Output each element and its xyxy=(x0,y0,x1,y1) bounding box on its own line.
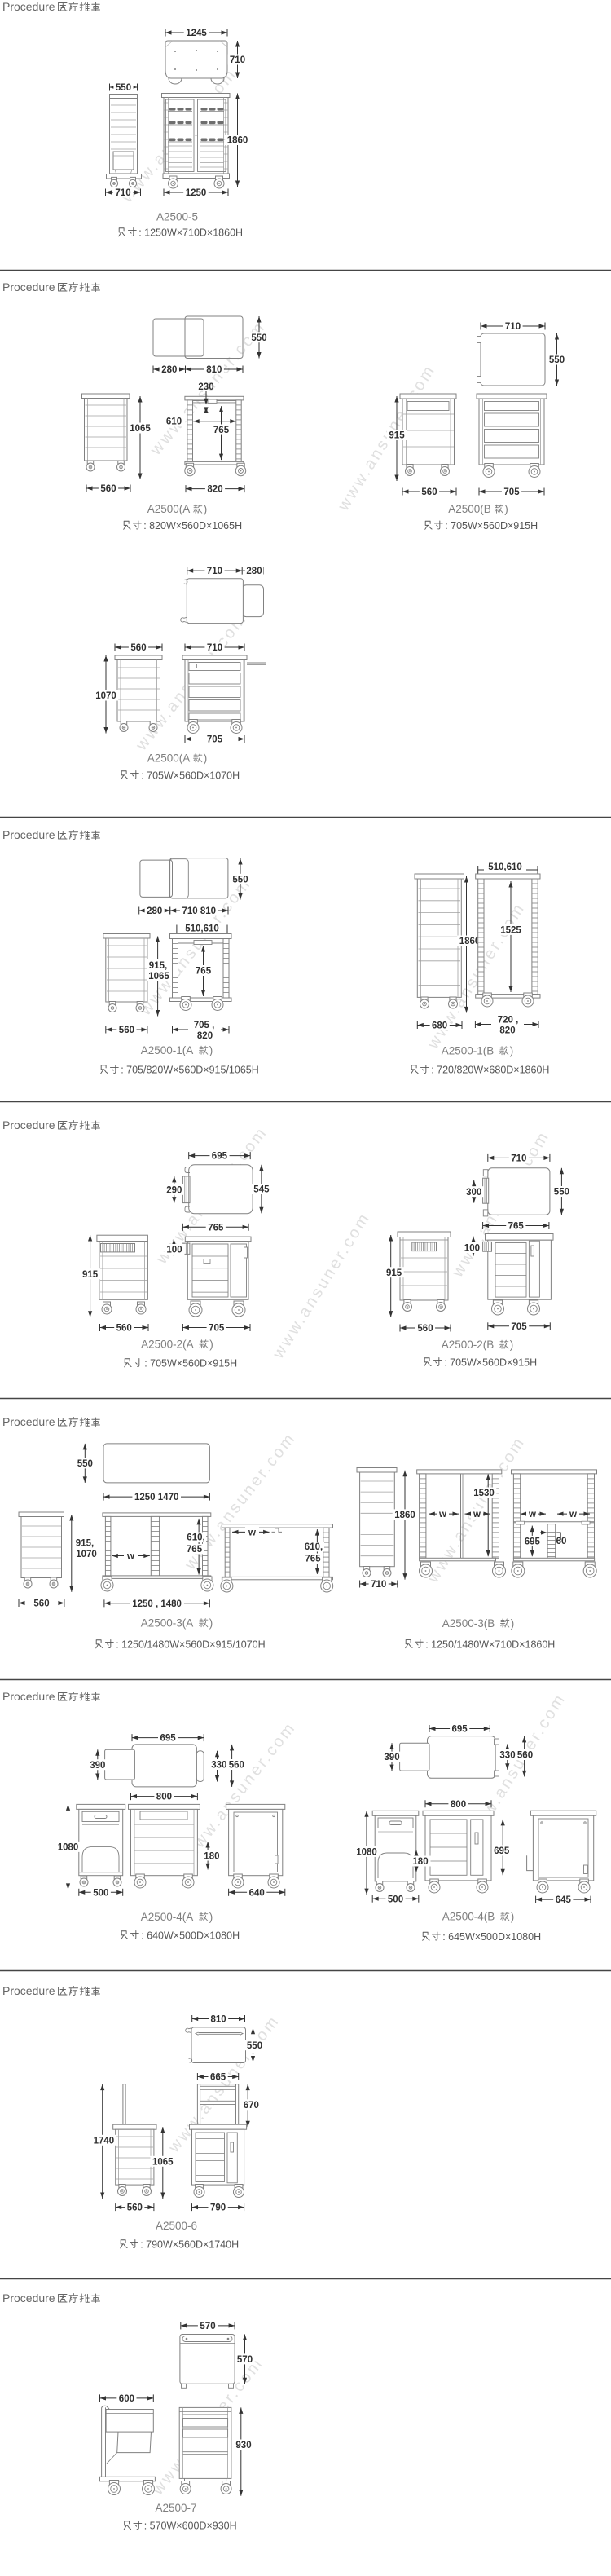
svg-text:: 645W×500D×1080H: : 645W×500D×1080H xyxy=(442,1931,541,1943)
svg-text:): ) xyxy=(204,752,208,765)
svg-text:680: 680 xyxy=(432,1021,447,1031)
svg-text:560: 560 xyxy=(229,1761,244,1771)
svg-text:w: w xyxy=(248,1528,256,1538)
svg-text:915: 915 xyxy=(386,1268,402,1278)
svg-text:1860: 1860 xyxy=(459,937,481,946)
svg-text:600: 600 xyxy=(119,2394,134,2404)
svg-text:705: 705 xyxy=(207,735,223,745)
svg-text:): ) xyxy=(510,1339,514,1351)
svg-text:1250 , 1480: 1250 , 1480 xyxy=(132,1599,182,1609)
svg-text:765: 765 xyxy=(208,1223,224,1233)
svg-text:1080: 1080 xyxy=(58,1843,79,1853)
svg-text:710: 710 xyxy=(511,1154,526,1164)
svg-text:330: 330 xyxy=(211,1761,226,1771)
svg-text:Procedure: Procedure xyxy=(2,1690,55,1703)
svg-text:): ) xyxy=(209,1044,213,1056)
svg-text:915,: 915, xyxy=(76,1539,94,1549)
svg-text:695: 695 xyxy=(525,1537,541,1547)
svg-text:550: 550 xyxy=(77,1459,93,1469)
svg-text:930: 930 xyxy=(235,2441,251,2450)
svg-text:800: 800 xyxy=(451,1800,466,1810)
svg-text:705: 705 xyxy=(511,1322,527,1332)
svg-text:1065: 1065 xyxy=(130,424,151,434)
svg-text:w: w xyxy=(528,1510,536,1520)
svg-text:560: 560 xyxy=(130,643,146,653)
svg-text:60: 60 xyxy=(556,1537,567,1546)
svg-text:: 720/820W×680D×1860H: : 720/820W×680D×1860H xyxy=(431,1065,549,1076)
svg-text:Procedure: Procedure xyxy=(2,1415,55,1428)
svg-text:1080: 1080 xyxy=(356,1848,377,1858)
svg-text:705: 705 xyxy=(503,487,520,497)
svg-text:Procedure: Procedure xyxy=(2,0,55,13)
svg-text:A2500(A: A2500(A xyxy=(147,752,191,765)
svg-text:705 ,: 705 , xyxy=(194,1021,215,1030)
svg-text:560: 560 xyxy=(417,1324,433,1334)
svg-text:Procedure: Procedure xyxy=(2,1118,55,1131)
svg-text:915: 915 xyxy=(82,1270,99,1280)
svg-text:A2500-6: A2500-6 xyxy=(156,2220,197,2232)
svg-text:560: 560 xyxy=(100,484,116,494)
svg-text:560: 560 xyxy=(33,1599,49,1609)
svg-text:A2500-3(A: A2500-3(A xyxy=(141,1617,194,1630)
svg-text:: 1250/1480W×710D×1860H: : 1250/1480W×710D×1860H xyxy=(425,1639,555,1650)
svg-text:695: 695 xyxy=(160,1734,177,1744)
svg-text:): ) xyxy=(204,503,208,515)
svg-text:A2500-2(B: A2500-2(B xyxy=(442,1339,495,1351)
svg-text:705: 705 xyxy=(209,1324,225,1334)
svg-text:w: w xyxy=(569,1510,577,1520)
svg-text:A2500-7: A2500-7 xyxy=(155,2502,196,2514)
svg-text:A2500-4(A: A2500-4(A xyxy=(141,1911,194,1923)
svg-text:390: 390 xyxy=(90,1761,105,1771)
svg-text:640: 640 xyxy=(249,1888,265,1898)
svg-text:560: 560 xyxy=(127,2203,143,2213)
svg-text:710: 710 xyxy=(207,643,222,653)
svg-text:100: 100 xyxy=(166,1245,182,1255)
svg-text:820: 820 xyxy=(499,1026,515,1036)
svg-text:560: 560 xyxy=(116,1324,132,1334)
svg-text:765: 765 xyxy=(196,967,212,977)
svg-text:w: w xyxy=(126,1552,134,1562)
svg-text:A2500-2(A: A2500-2(A xyxy=(141,1339,194,1351)
svg-text:300: 300 xyxy=(466,1188,481,1198)
svg-text:230: 230 xyxy=(198,382,213,392)
svg-text:280: 280 xyxy=(246,567,262,576)
svg-text:710: 710 xyxy=(207,567,222,576)
svg-text:A2500(A: A2500(A xyxy=(147,503,191,515)
svg-text:290: 290 xyxy=(166,1185,182,1195)
svg-text:765: 765 xyxy=(213,426,230,435)
svg-text:1245: 1245 xyxy=(186,29,207,38)
svg-text:545: 545 xyxy=(253,1185,270,1195)
svg-text:Procedure: Procedure xyxy=(2,1984,55,1997)
svg-text:820: 820 xyxy=(207,485,222,495)
svg-text:: 1250W×710D×1860H: : 1250W×710D×1860H xyxy=(138,227,243,239)
svg-text:550: 550 xyxy=(549,355,565,365)
svg-text:645: 645 xyxy=(556,1895,572,1905)
svg-text:: 1250/1480W×560D×915/1070H: : 1250/1480W×560D×915/1070H xyxy=(116,1639,265,1651)
svg-text:): ) xyxy=(504,503,508,515)
svg-text:710: 710 xyxy=(230,55,245,65)
svg-text:): ) xyxy=(209,1617,213,1630)
svg-text:810: 810 xyxy=(211,2015,226,2025)
svg-text:570: 570 xyxy=(237,2355,253,2365)
svg-text:500: 500 xyxy=(388,1895,403,1904)
svg-text:550: 550 xyxy=(116,83,131,93)
svg-text:180: 180 xyxy=(412,1857,428,1867)
svg-text:610,: 610, xyxy=(305,1542,323,1552)
svg-text:665: 665 xyxy=(210,2073,226,2083)
svg-text:550: 550 xyxy=(232,875,248,884)
svg-text:: 790W×560D×1740H: : 790W×560D×1740H xyxy=(140,2239,239,2251)
svg-text:915: 915 xyxy=(389,431,405,441)
svg-text:280: 280 xyxy=(147,906,162,916)
svg-text:790: 790 xyxy=(210,2203,226,2213)
svg-text:390: 390 xyxy=(384,1753,399,1762)
svg-text:710: 710 xyxy=(371,1580,386,1590)
svg-text:500: 500 xyxy=(93,1888,108,1898)
svg-text:: 705W×560D×1070H: : 705W×560D×1070H xyxy=(141,770,240,782)
svg-text:510,610: 510,610 xyxy=(185,924,219,934)
svg-text:1860: 1860 xyxy=(394,1511,415,1520)
svg-text:: 820W×560D×1065H: : 820W×560D×1065H xyxy=(143,520,242,532)
svg-text:560: 560 xyxy=(119,1026,134,1035)
svg-text:A2500-1(B: A2500-1(B xyxy=(442,1045,495,1057)
svg-text:180: 180 xyxy=(204,1851,219,1861)
svg-text:765: 765 xyxy=(508,1222,525,1232)
svg-text:820: 820 xyxy=(197,1031,213,1041)
svg-text:: 705/820W×560D×915/1065H: : 705/820W×560D×915/1065H xyxy=(121,1065,259,1076)
svg-text:): ) xyxy=(511,1911,515,1923)
svg-text:560: 560 xyxy=(517,1751,533,1761)
svg-text:A2500-4(B: A2500-4(B xyxy=(442,1911,495,1923)
svg-text:w: w xyxy=(438,1510,446,1520)
svg-text:A2500-5: A2500-5 xyxy=(156,211,198,223)
svg-text:800: 800 xyxy=(156,1793,172,1802)
svg-text:1860: 1860 xyxy=(227,136,248,146)
svg-text:1070: 1070 xyxy=(95,691,116,701)
svg-text:1250: 1250 xyxy=(186,188,207,198)
svg-text:1070: 1070 xyxy=(76,1550,97,1559)
svg-text:695: 695 xyxy=(452,1725,468,1735)
svg-text:330: 330 xyxy=(499,1751,515,1761)
svg-text:560: 560 xyxy=(421,487,437,497)
svg-text:670: 670 xyxy=(244,2101,259,2111)
svg-text:610: 610 xyxy=(166,417,182,427)
svg-text:Procedure: Procedure xyxy=(2,2291,55,2305)
svg-text:: 705W×560D×915H: : 705W×560D×915H xyxy=(445,520,538,532)
svg-text:1740: 1740 xyxy=(94,2136,115,2146)
svg-text:): ) xyxy=(209,1339,213,1351)
svg-text:: 570W×600D×930H: : 570W×600D×930H xyxy=(144,2521,237,2532)
svg-text:765: 765 xyxy=(187,1545,203,1555)
svg-text:Procedure: Procedure xyxy=(2,828,55,841)
svg-text:710: 710 xyxy=(115,188,130,198)
svg-text:710 810: 710 810 xyxy=(182,906,217,916)
svg-text:A2500-1(A: A2500-1(A xyxy=(141,1044,194,1056)
svg-text:695: 695 xyxy=(494,1846,510,1856)
svg-text:A2500-3(B: A2500-3(B xyxy=(442,1617,495,1630)
svg-text:Procedure: Procedure xyxy=(2,280,55,293)
svg-text:): ) xyxy=(209,1911,213,1923)
svg-text:1250 1470: 1250 1470 xyxy=(134,1493,178,1502)
svg-text:): ) xyxy=(510,1045,514,1057)
svg-text:280: 280 xyxy=(161,365,177,375)
svg-text:550: 550 xyxy=(554,1188,569,1198)
svg-text:510,610: 510,610 xyxy=(488,862,522,872)
svg-text:): ) xyxy=(511,1617,515,1630)
svg-text:: 705W×560D×915H: : 705W×560D×915H xyxy=(144,1358,237,1370)
svg-text:: 640W×500D×1080H: : 640W×500D×1080H xyxy=(141,1930,240,1942)
svg-text:610,: 610, xyxy=(187,1533,204,1543)
svg-text:1065: 1065 xyxy=(148,972,169,981)
svg-text:720 ,: 720 , xyxy=(498,1016,519,1026)
svg-text:1525: 1525 xyxy=(500,926,521,936)
svg-text:765: 765 xyxy=(305,1555,321,1564)
svg-text:570: 570 xyxy=(200,2322,215,2331)
svg-text:810: 810 xyxy=(206,365,222,375)
svg-text:A2500(B: A2500(B xyxy=(448,503,491,515)
svg-text:695: 695 xyxy=(212,1152,228,1162)
svg-text:1530: 1530 xyxy=(473,1489,495,1498)
svg-text:w: w xyxy=(473,1510,481,1520)
svg-text:550: 550 xyxy=(247,2041,262,2051)
svg-text:: 705W×560D×915H: : 705W×560D×915H xyxy=(444,1357,537,1369)
svg-text:710: 710 xyxy=(505,322,521,332)
svg-text:550: 550 xyxy=(251,333,266,343)
svg-text:100: 100 xyxy=(464,1243,480,1253)
svg-text:1065: 1065 xyxy=(152,2157,174,2167)
svg-text:915,: 915, xyxy=(149,961,167,971)
